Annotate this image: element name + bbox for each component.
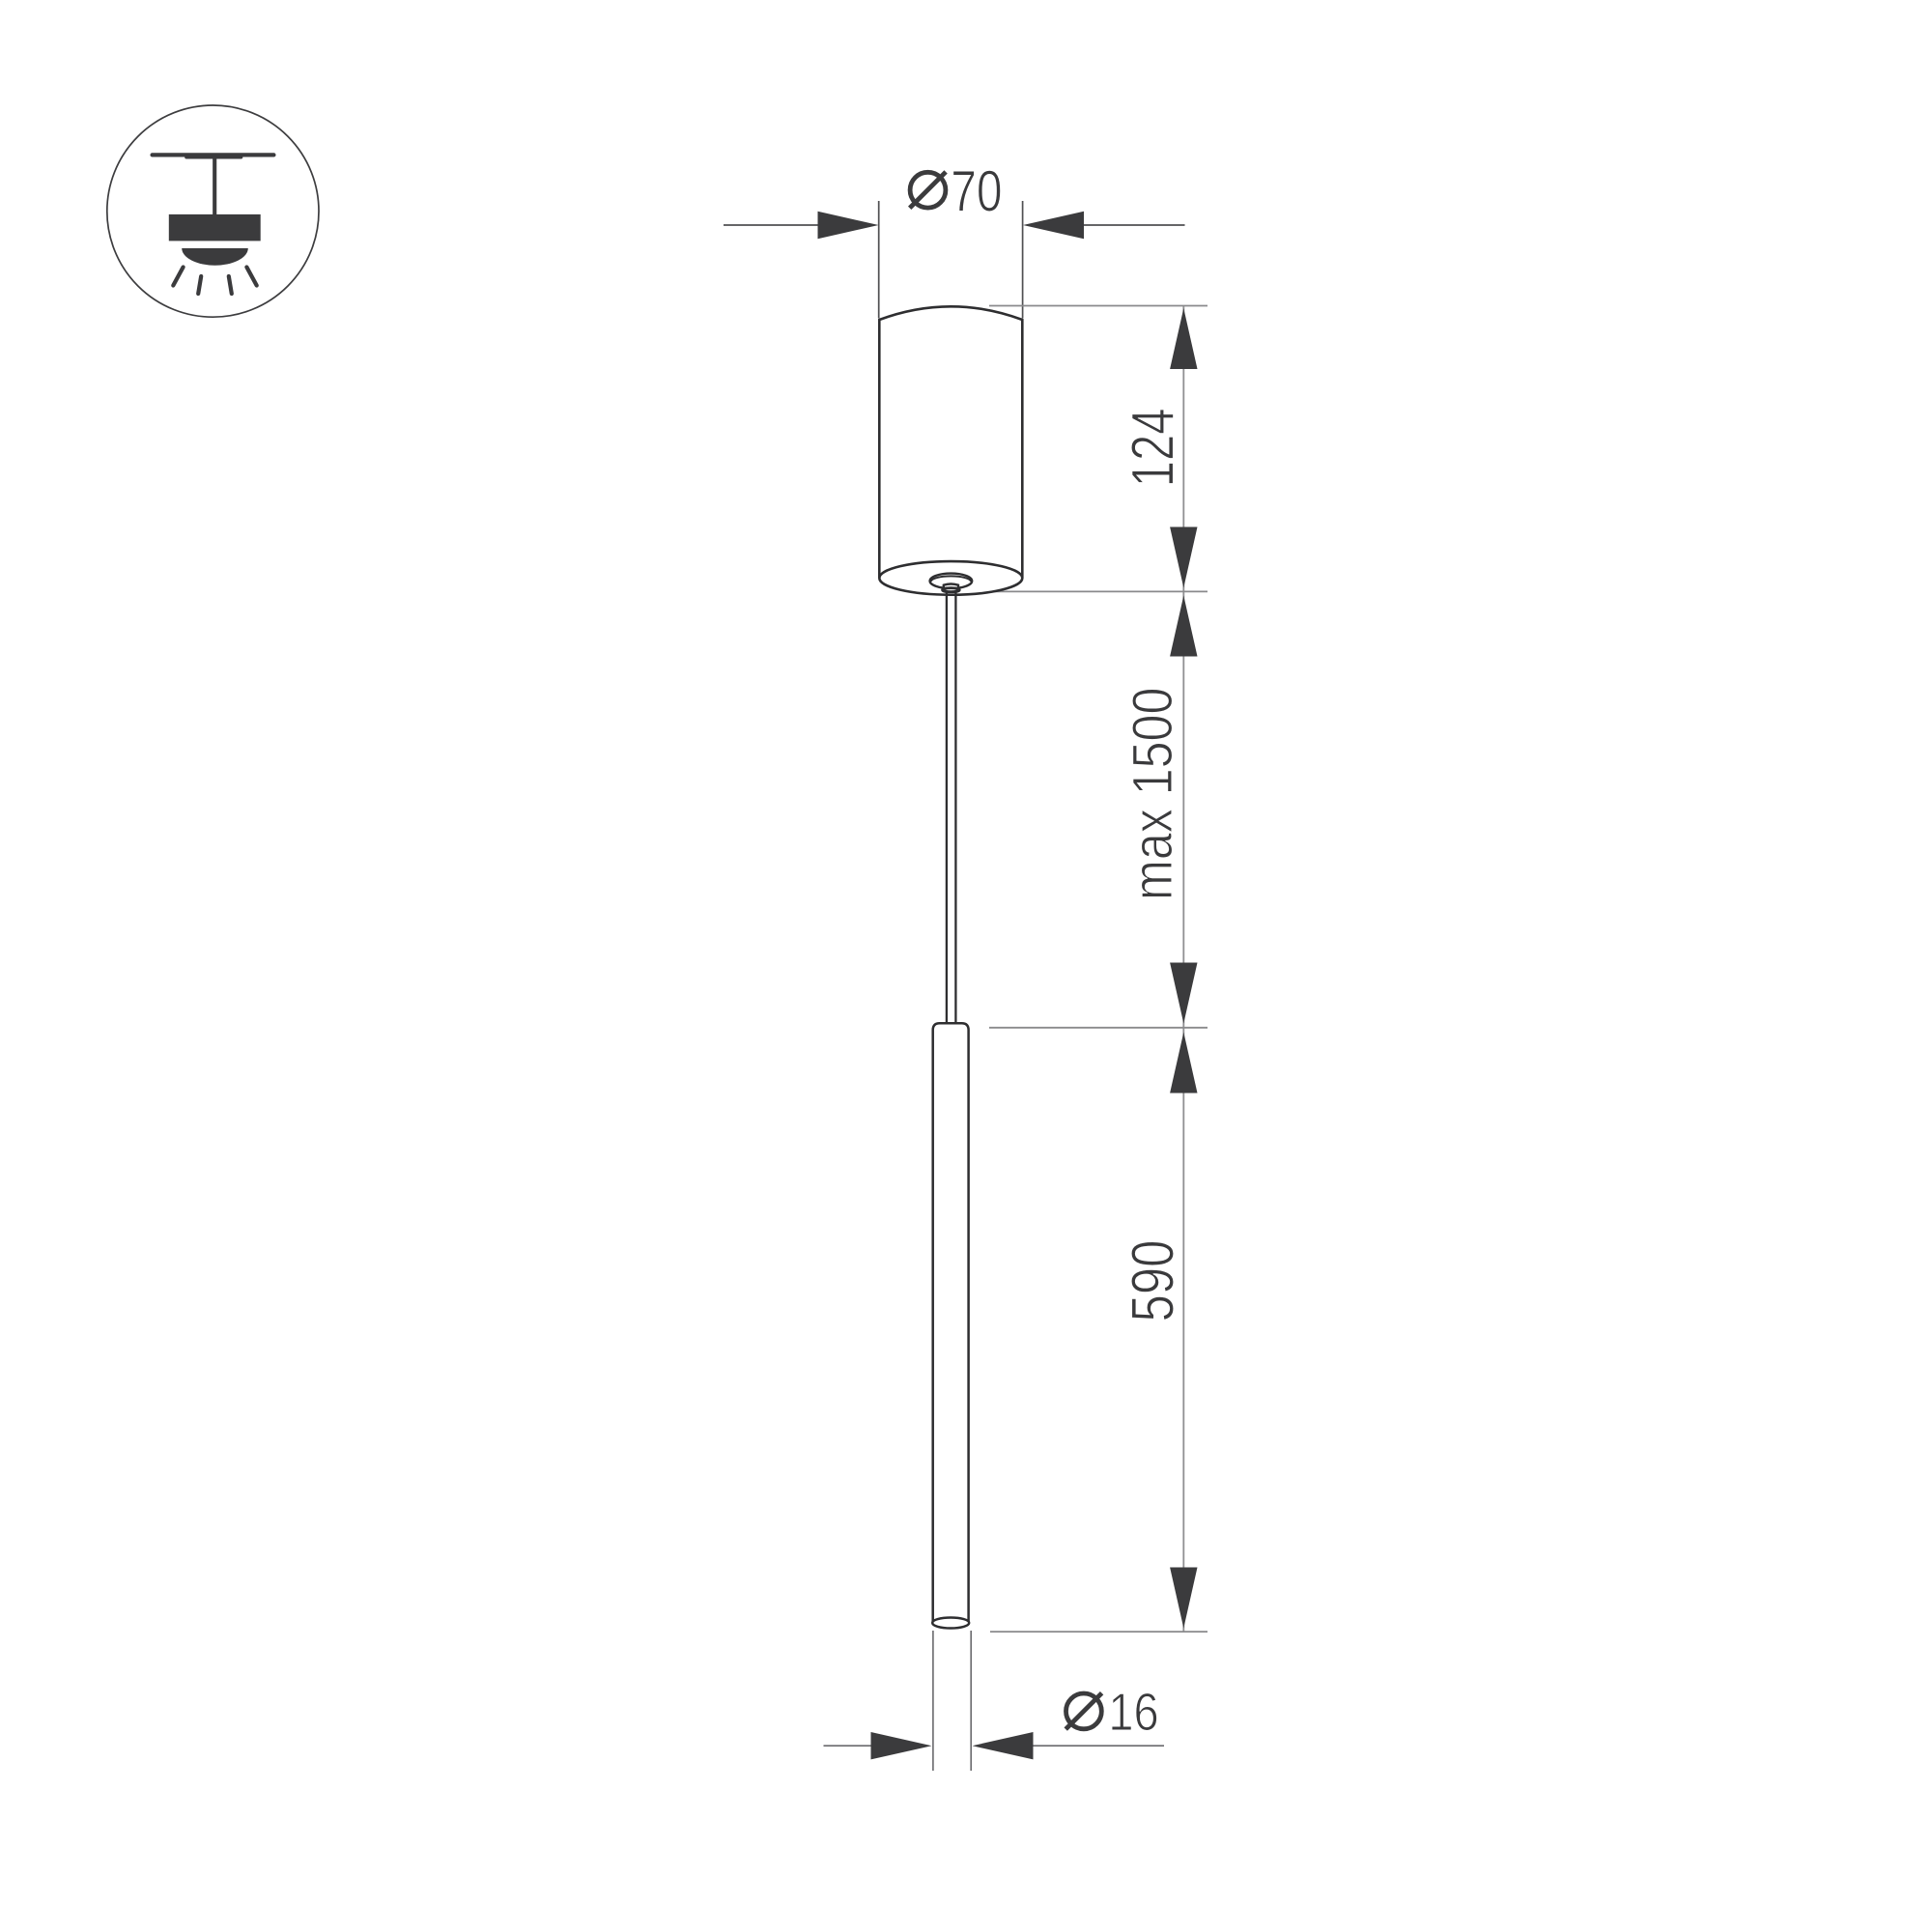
svg-text:590: 590 [1121, 1240, 1187, 1322]
svg-text:16: 16 [1108, 1683, 1158, 1742]
svg-text:70: 70 [951, 158, 1002, 223]
svg-text:124: 124 [1119, 409, 1186, 488]
svg-text:max 1500: max 1500 [1122, 688, 1184, 900]
